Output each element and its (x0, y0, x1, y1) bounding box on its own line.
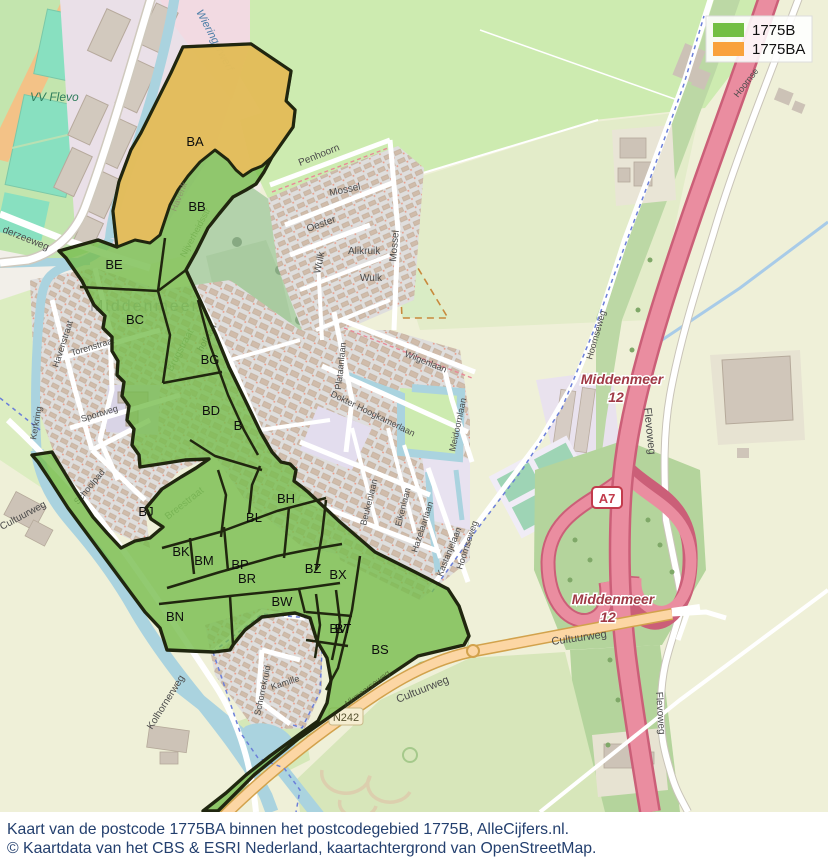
svg-text:© Kaartdata van het CBS & ESRI: © Kaartdata van het CBS & ESRI Nederland… (7, 840, 596, 857)
svg-text:BT: BT (335, 621, 352, 636)
svg-text:BA: BA (186, 134, 204, 149)
svg-text:BS: BS (371, 642, 389, 657)
svg-text:BD: BD (202, 403, 220, 418)
svg-text:Alikruik: Alikruik (348, 246, 381, 257)
svg-text:12: 12 (608, 389, 624, 405)
svg-text:VV Flevo: VV Flevo (30, 90, 79, 104)
svg-text:BP: BP (231, 557, 248, 572)
svg-text:Kaart van de postcode 1775BA b: Kaart van de postcode 1775BA binnen het … (7, 821, 569, 838)
svg-text:BG: BG (201, 352, 220, 367)
svg-text:1775B: 1775B (752, 22, 795, 39)
svg-text:BK: BK (172, 544, 190, 559)
svg-text:BE: BE (105, 257, 123, 272)
svg-text:Middenmeer: Middenmeer (581, 371, 665, 387)
svg-text:Middenmeer: Middenmeer (572, 591, 656, 607)
svg-text:B: B (234, 418, 243, 433)
svg-text:A7: A7 (599, 491, 616, 506)
svg-text:BL: BL (246, 510, 262, 525)
svg-text:12: 12 (600, 609, 616, 625)
svg-text:Wulk: Wulk (360, 273, 383, 284)
svg-text:BJ: BJ (138, 504, 153, 519)
svg-text:BN: BN (166, 609, 184, 624)
svg-text:BZ: BZ (305, 561, 322, 576)
svg-text:BB: BB (188, 199, 205, 214)
svg-text:1775BA: 1775BA (752, 41, 805, 58)
svg-text:BW: BW (272, 594, 294, 609)
svg-text:BC: BC (126, 312, 144, 327)
svg-text:BM: BM (194, 553, 214, 568)
svg-text:BH: BH (277, 491, 295, 506)
svg-text:BR: BR (238, 571, 256, 586)
svg-text:BX: BX (329, 567, 347, 582)
